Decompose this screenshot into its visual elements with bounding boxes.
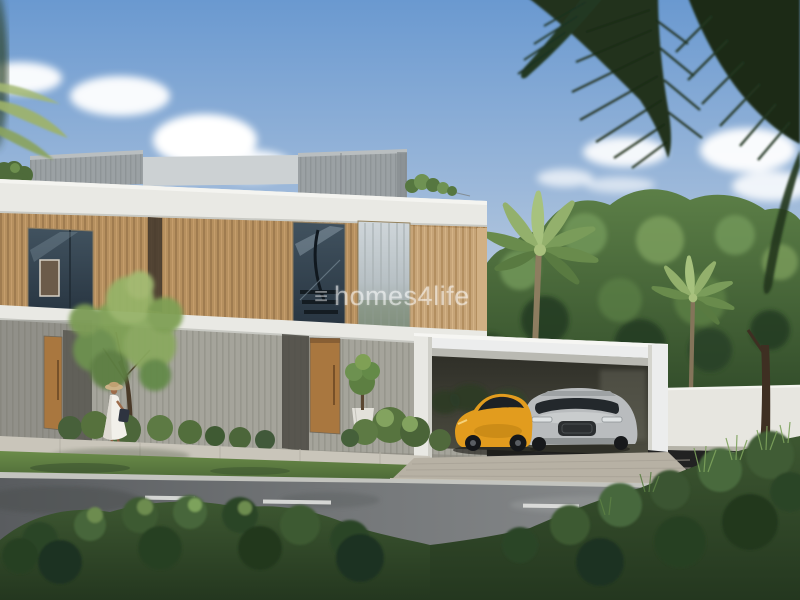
roof-parapet	[143, 155, 299, 186]
front-door-middle	[310, 338, 340, 434]
front-door-left	[44, 336, 62, 430]
curtain-window	[358, 221, 410, 332]
villa-render	[0, 0, 800, 600]
roof-structure-middle	[298, 149, 407, 200]
suv	[523, 388, 637, 454]
porch-recess-middle	[282, 334, 309, 452]
real-estate-listing-photo: ≡ homes4life	[0, 0, 800, 600]
handbag	[118, 408, 130, 422]
upper-window-stair	[293, 222, 345, 330]
